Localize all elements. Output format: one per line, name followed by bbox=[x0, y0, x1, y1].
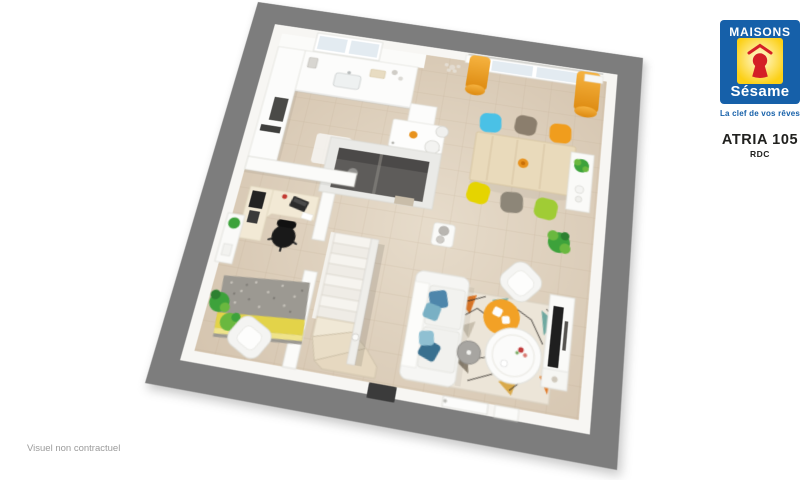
keyhole-svg bbox=[737, 38, 783, 84]
floor-plan-image bbox=[145, 2, 643, 470]
floor-plan-svg bbox=[145, 2, 643, 470]
floor-label: RDC bbox=[703, 149, 811, 159]
logo-name-top: MAISONS bbox=[729, 26, 791, 38]
roof-icon bbox=[749, 46, 771, 54]
model-name: ATRIA 105 bbox=[703, 132, 811, 148]
page: MAISONS Sésame La clef de vos rêves ATRI… bbox=[0, 0, 811, 480]
keyhole-stem bbox=[752, 65, 768, 79]
logo-tagline: La clef de vos rêves bbox=[703, 109, 811, 118]
keyhole-icon bbox=[737, 38, 783, 84]
hall-side-table bbox=[431, 222, 456, 248]
sofa-pillow4 bbox=[419, 331, 434, 346]
branding-block: MAISONS Sésame La clef de vos rêves ATRI… bbox=[703, 20, 811, 159]
maisons-sesame-logo: MAISONS Sésame bbox=[720, 20, 800, 104]
logo-name-bottom: Sésame bbox=[730, 84, 789, 99]
disclaimer-text: Visuel non contractuel bbox=[27, 443, 120, 454]
